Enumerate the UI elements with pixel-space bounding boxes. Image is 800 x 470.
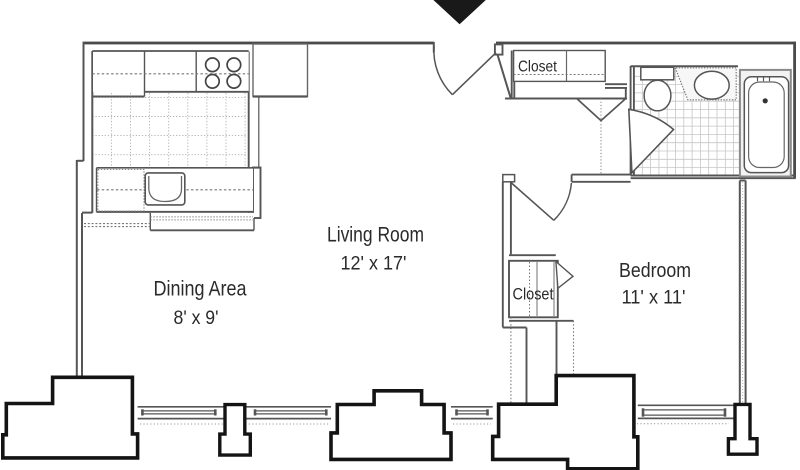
- svg-text:Bedroom: Bedroom: [619, 259, 691, 282]
- svg-text:Closet: Closet: [513, 286, 554, 304]
- svg-text:11' x 11': 11' x 11': [622, 288, 686, 309]
- svg-text:Closet: Closet: [518, 59, 557, 76]
- svg-text:Living Room: Living Room: [327, 224, 424, 247]
- svg-text:8' x 9': 8' x 9': [174, 308, 219, 329]
- svg-text:12' x 17': 12' x 17': [341, 254, 407, 275]
- svg-text:Dining Area: Dining Area: [154, 278, 247, 301]
